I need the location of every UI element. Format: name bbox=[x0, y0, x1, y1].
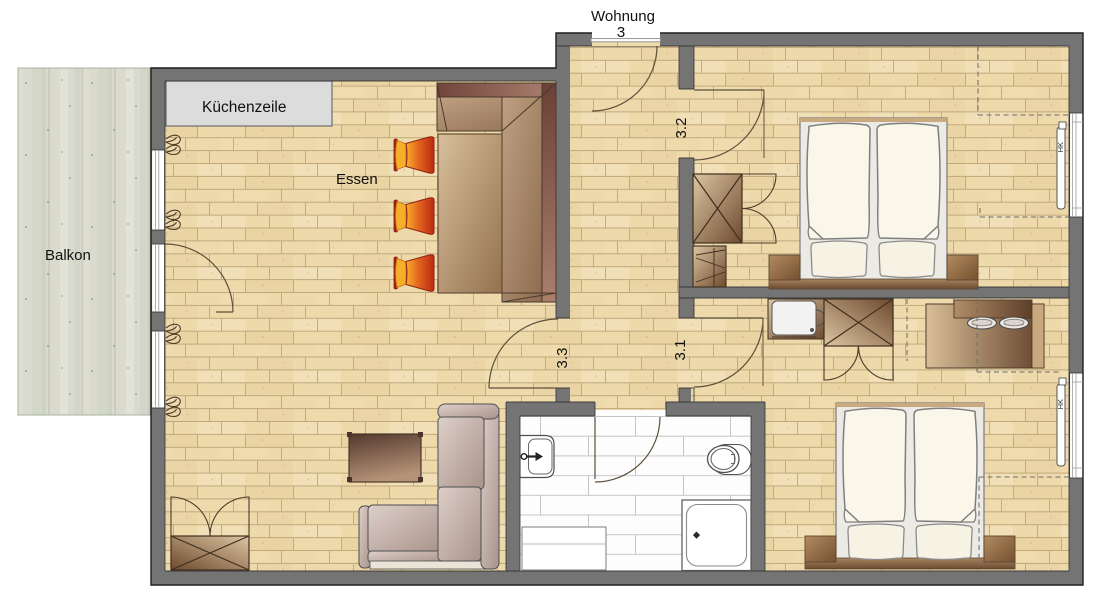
svg-text:HK: HK bbox=[1056, 399, 1065, 409]
svg-text:Küchenzeile: Küchenzeile bbox=[202, 99, 286, 116]
svg-text:3.2: 3.2 bbox=[673, 118, 690, 139]
svg-text:Essen: Essen bbox=[336, 171, 378, 188]
svg-text:Balkon: Balkon bbox=[45, 247, 91, 264]
svg-text:3: 3 bbox=[617, 24, 625, 41]
svg-text:Wohnung: Wohnung bbox=[591, 8, 655, 25]
svg-text:3.3: 3.3 bbox=[554, 348, 571, 369]
svg-text:3.1: 3.1 bbox=[672, 340, 689, 361]
svg-text:HK: HK bbox=[1056, 142, 1065, 152]
